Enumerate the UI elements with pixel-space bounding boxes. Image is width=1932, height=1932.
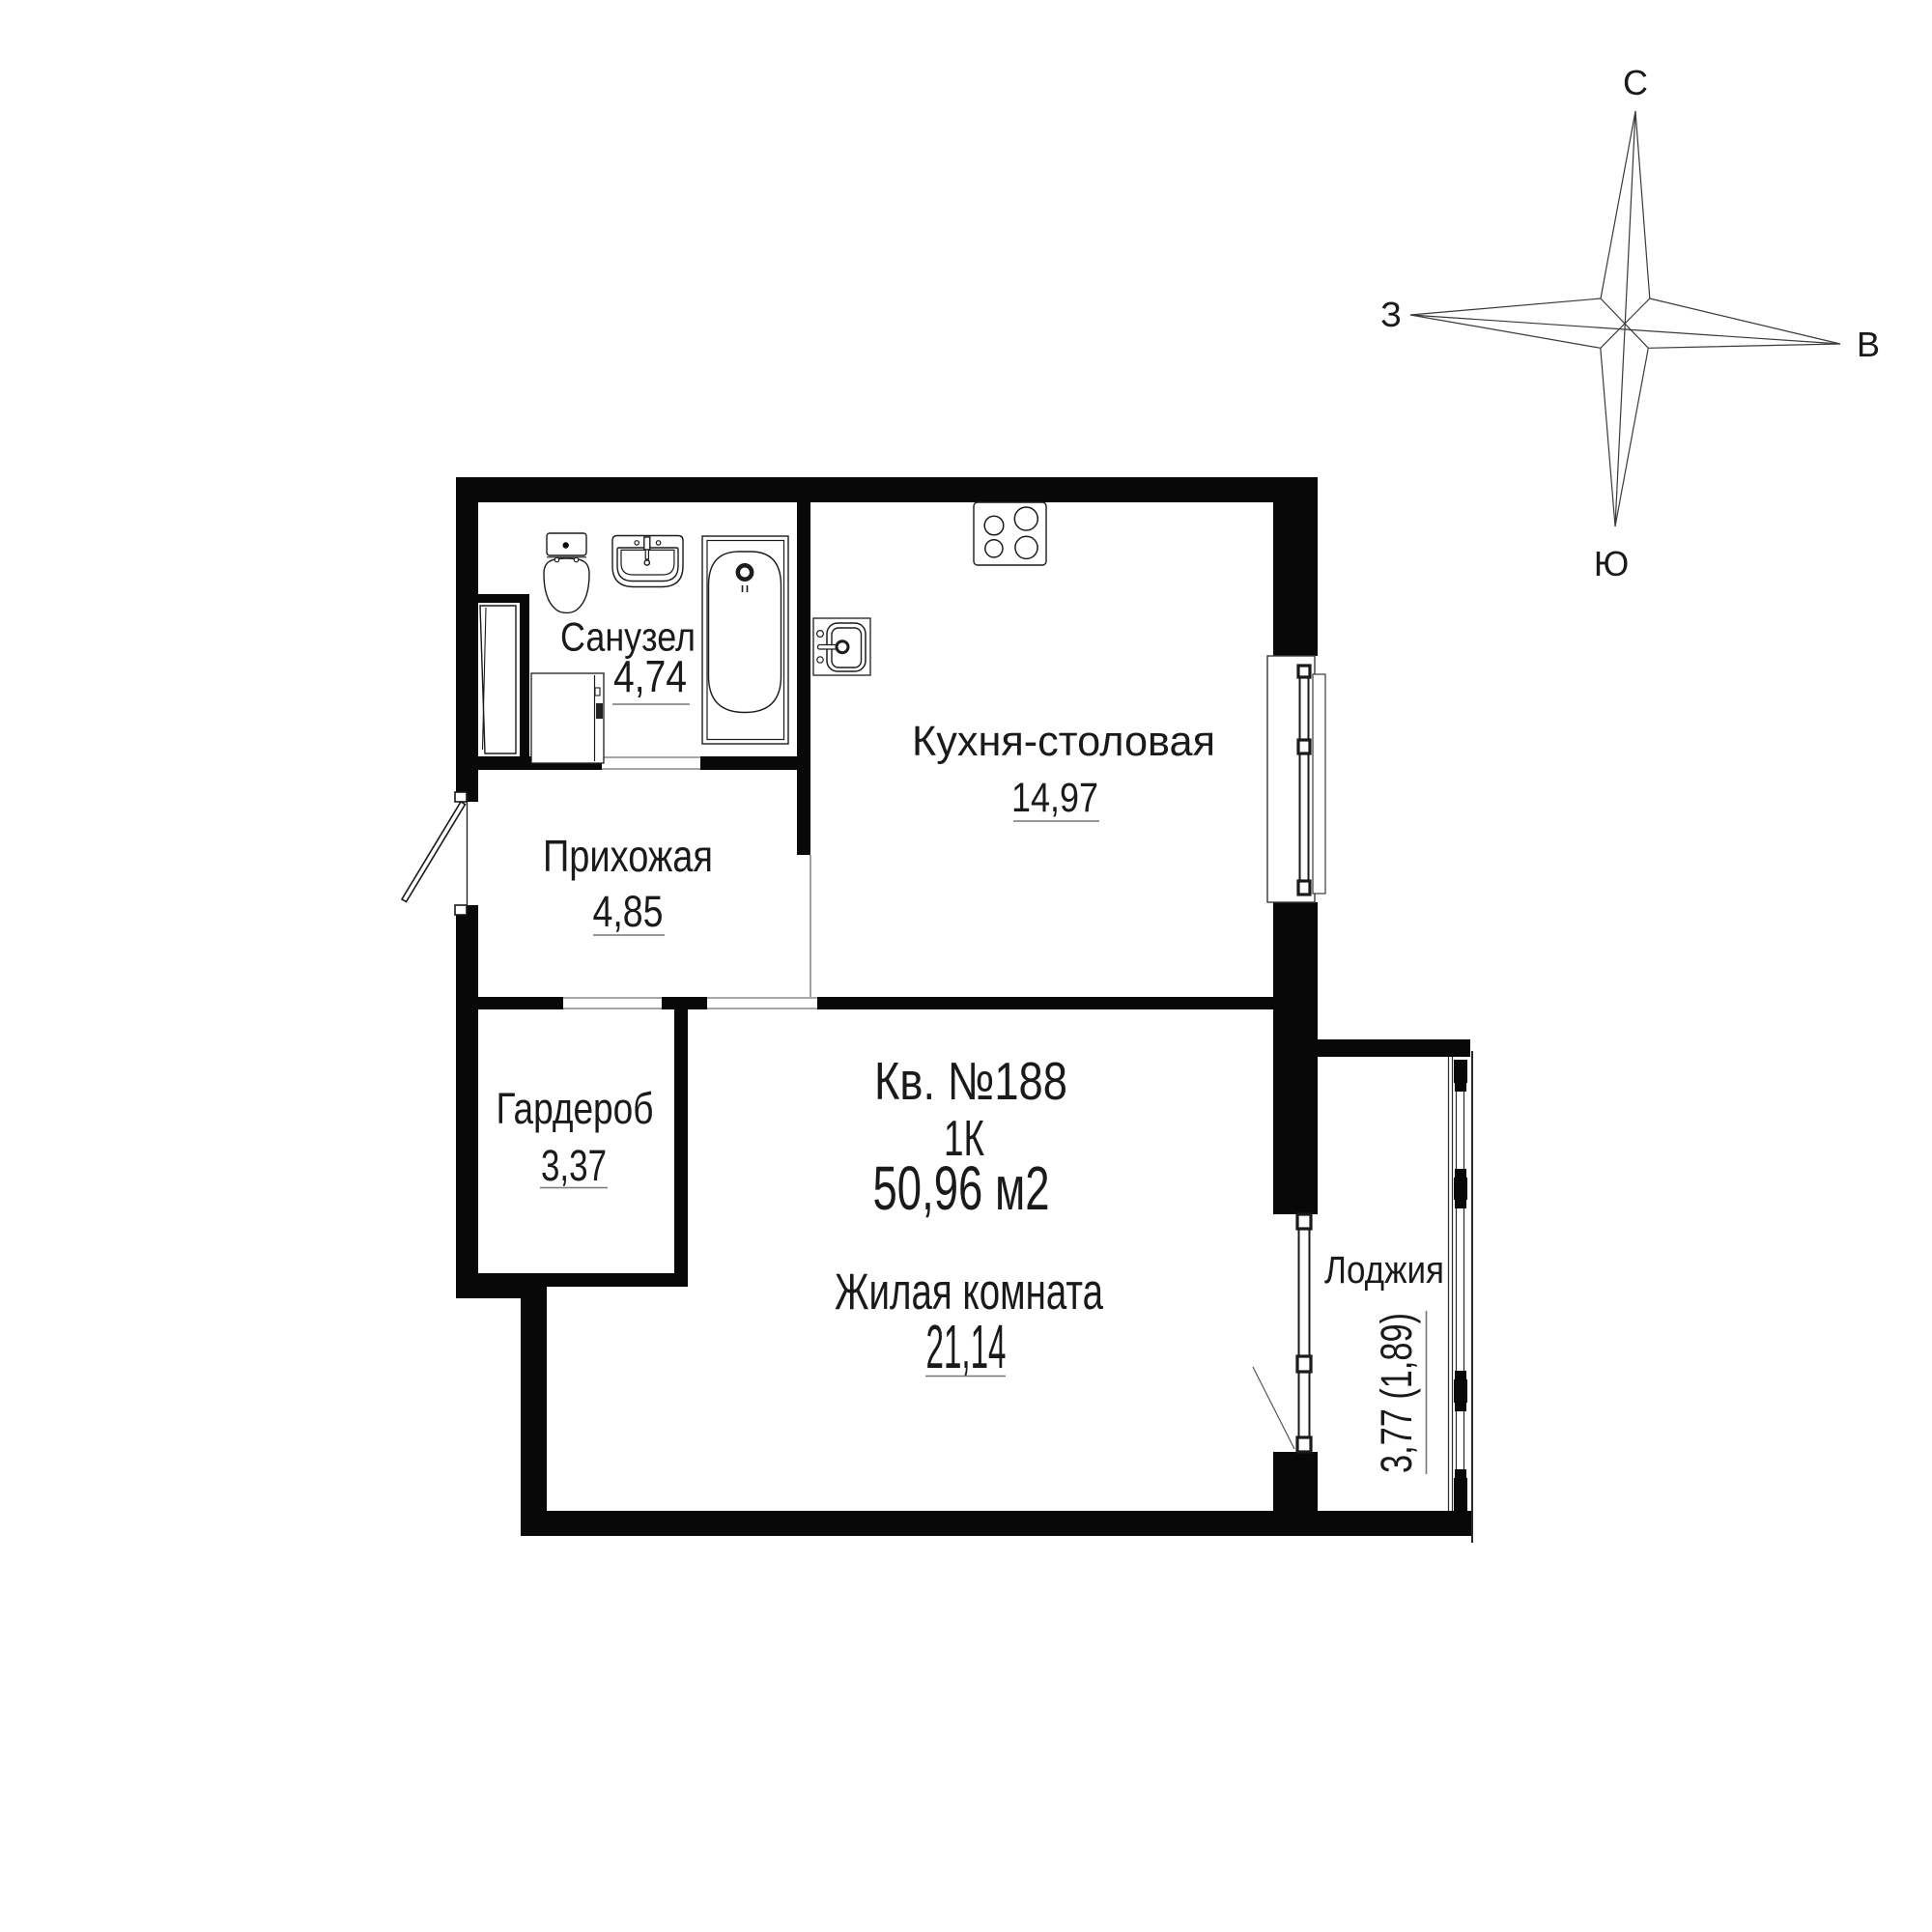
svg-text:Ю: Ю bbox=[1594, 544, 1629, 583]
svg-text:В: В bbox=[1857, 325, 1880, 364]
svg-text:Гардероб: Гардероб bbox=[497, 1084, 654, 1133]
svg-text:3,37: 3,37 bbox=[541, 1141, 607, 1190]
svg-text:14,97: 14,97 bbox=[1011, 775, 1098, 821]
svg-text:Прихожая: Прихожая bbox=[543, 831, 713, 881]
svg-text:С: С bbox=[1623, 63, 1648, 102]
svg-text:3,77 (1,89): 3,77 (1,89) bbox=[1372, 1313, 1421, 1473]
svg-text:21,14: 21,14 bbox=[926, 1312, 1007, 1381]
svg-text:З: З bbox=[1380, 295, 1402, 334]
svg-text:Кухня-столовая: Кухня-столовая bbox=[912, 718, 1215, 765]
svg-text:Лоджия: Лоджия bbox=[1324, 1249, 1444, 1292]
svg-text:Кв. №188: Кв. №188 bbox=[874, 1051, 1067, 1111]
svg-text:50,96 м2: 50,96 м2 bbox=[873, 1153, 1050, 1223]
svg-text:4,85: 4,85 bbox=[593, 887, 664, 936]
svg-text:4,74: 4,74 bbox=[613, 651, 687, 701]
